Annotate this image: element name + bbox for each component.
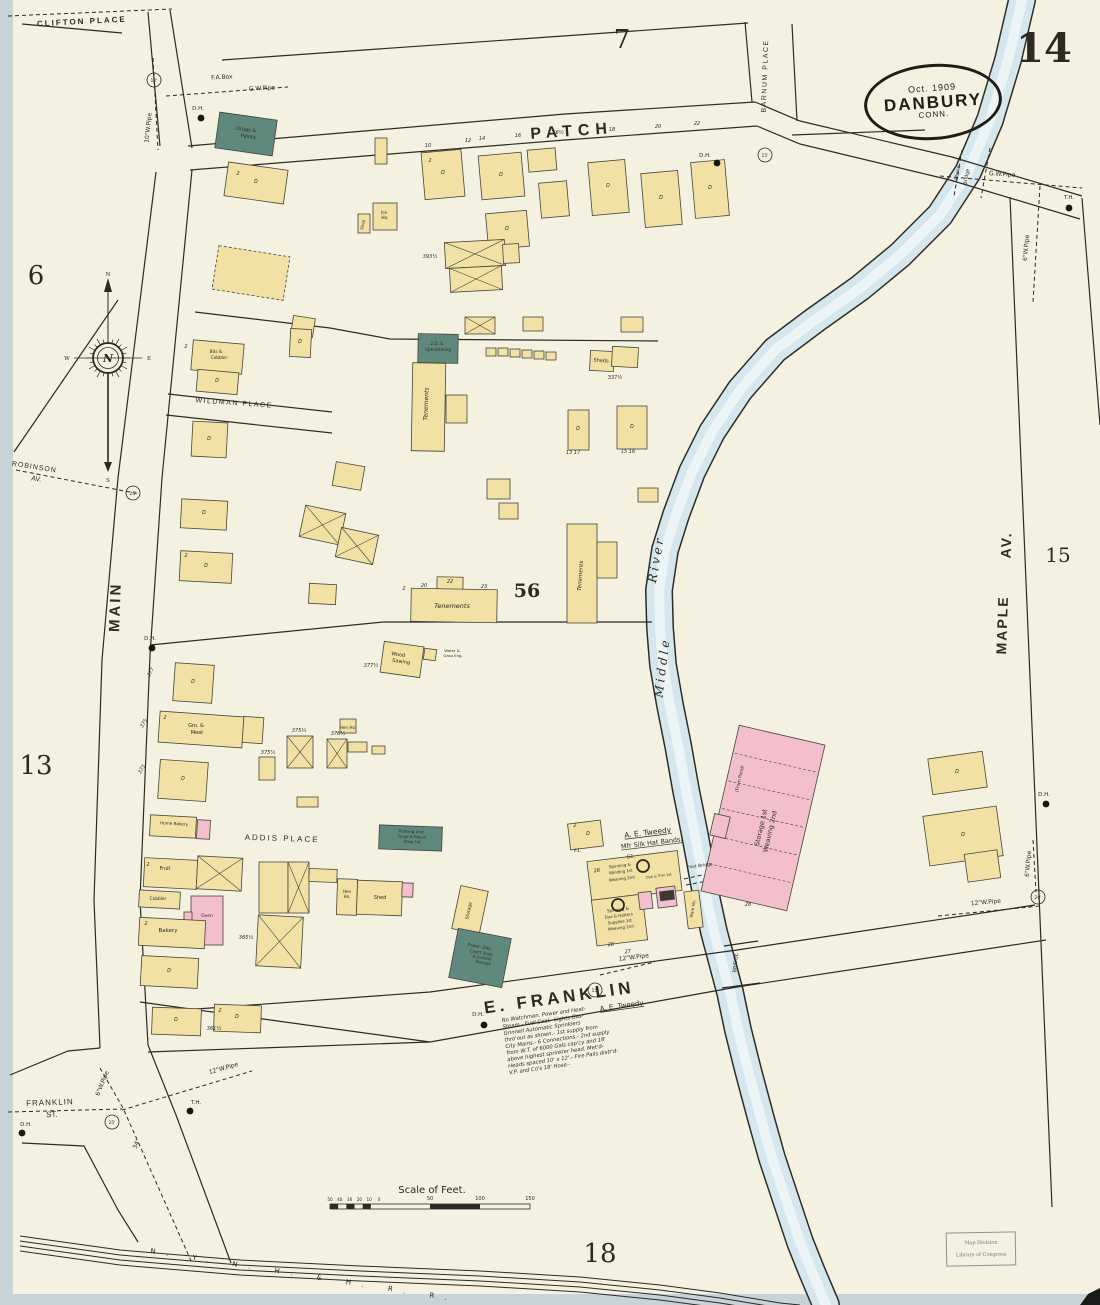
address-number-label: D bbox=[207, 436, 211, 442]
building bbox=[259, 757, 275, 780]
building-footprint bbox=[486, 348, 496, 356]
street-width-value: 20' bbox=[1035, 895, 1042, 901]
building-use-label: Shed bbox=[374, 895, 387, 901]
building-footprint bbox=[638, 488, 658, 502]
street-width-value: 12' bbox=[151, 78, 158, 84]
building bbox=[297, 797, 318, 807]
infrastructure-label: D.H. bbox=[192, 106, 204, 112]
building bbox=[287, 736, 313, 768]
scale-segment-filled bbox=[430, 1204, 480, 1209]
street-name-label: FRANKLIN bbox=[26, 1097, 74, 1108]
scale-tick-label: 30 bbox=[347, 1197, 353, 1202]
hydrant-icon bbox=[187, 1108, 194, 1115]
building-use-label: Cobbler bbox=[211, 355, 228, 361]
building-use-label: Tenements bbox=[422, 387, 430, 420]
building-footprint bbox=[259, 862, 288, 913]
infrastructure-label: F.A.Box bbox=[211, 73, 233, 81]
building bbox=[308, 583, 336, 604]
address-number-label: 2 bbox=[428, 158, 431, 164]
hydrant-icon bbox=[481, 1022, 488, 1029]
address-number-label: 2 bbox=[402, 586, 405, 592]
address-number-label: 22 bbox=[447, 579, 453, 585]
hydrant-icon bbox=[1066, 205, 1073, 212]
building bbox=[527, 148, 557, 172]
building bbox=[597, 542, 617, 578]
building-footprint bbox=[143, 858, 197, 890]
address-number-label: D bbox=[659, 195, 663, 201]
address-number-label: 28 bbox=[593, 868, 600, 875]
address-number-label: D bbox=[630, 424, 634, 430]
building bbox=[196, 856, 243, 891]
building bbox=[503, 244, 520, 264]
address-number-label: 2 bbox=[163, 715, 166, 721]
building bbox=[487, 479, 510, 499]
building-footprint bbox=[446, 395, 467, 423]
hydrant-icon bbox=[714, 160, 721, 167]
scale-tick-label: 100 bbox=[475, 1196, 485, 1202]
street-name-label: ST. bbox=[46, 1110, 58, 1119]
address-number-label: 2 bbox=[146, 862, 149, 868]
address-number-label: 2 bbox=[218, 1008, 221, 1014]
building-footprint bbox=[527, 148, 557, 172]
address-number-label: 18 bbox=[609, 127, 615, 133]
address-number-label: D bbox=[606, 183, 610, 189]
badge-state: CONN. bbox=[918, 110, 949, 121]
address-number-label: 2 bbox=[236, 171, 239, 177]
scale-tick-label: 10 bbox=[367, 1197, 373, 1202]
infrastructure-label: D.H. bbox=[699, 153, 711, 159]
building-use-label: Ho. bbox=[381, 215, 388, 221]
building bbox=[242, 716, 264, 743]
building bbox=[499, 503, 518, 519]
building-footprint bbox=[498, 348, 508, 356]
building-footprint bbox=[964, 850, 1001, 882]
building-use-label: 337½ bbox=[608, 374, 623, 381]
building-use-label: Gaso Eng. bbox=[443, 653, 462, 658]
scan-margin-left bbox=[0, 0, 13, 1305]
building bbox=[539, 181, 570, 218]
infrastructure-label: D.H. bbox=[144, 636, 156, 642]
building-use-label: Gro. & bbox=[188, 723, 204, 729]
building bbox=[259, 862, 288, 913]
building-footprint bbox=[503, 244, 520, 264]
building-use-label: Upholstering bbox=[425, 347, 451, 352]
address-number-label: 28 bbox=[745, 902, 751, 908]
building bbox=[660, 890, 675, 901]
scale-tick-label: 50 bbox=[327, 1197, 333, 1202]
address-number-label: 15 16 bbox=[621, 449, 635, 455]
building-footprint bbox=[638, 891, 653, 909]
building bbox=[332, 462, 365, 491]
infrastructure-label: T.H. bbox=[190, 1100, 201, 1106]
building-footprint bbox=[332, 462, 365, 491]
building-footprint bbox=[534, 351, 544, 359]
building-use-label: Cobbler bbox=[150, 896, 167, 902]
address-number-label: D bbox=[298, 339, 302, 345]
address-number-label: D bbox=[961, 832, 965, 838]
address-number-label: 375½ bbox=[261, 749, 276, 756]
address-number-label: F1. bbox=[574, 848, 582, 855]
building-footprint bbox=[402, 883, 413, 897]
address-number-label: 2 bbox=[184, 344, 187, 350]
address-number-label: 28 bbox=[607, 942, 614, 949]
sheet-number: 7 bbox=[614, 25, 631, 55]
building-use-label: Bakery bbox=[158, 928, 178, 934]
address-number-label: 14 bbox=[479, 136, 485, 142]
building bbox=[465, 317, 495, 334]
address-number-label: D bbox=[499, 172, 503, 178]
building-footprint bbox=[297, 797, 318, 807]
sanborn-map-page: 12'15'25'15'25'20'CLIFTON PLACEPATCHBARN… bbox=[0, 0, 1100, 1305]
scale-subcell bbox=[346, 1204, 354, 1209]
stamp-line2: Library of Congress bbox=[956, 1252, 1007, 1259]
building bbox=[197, 820, 211, 840]
building-use-label: 2.D. & bbox=[430, 341, 444, 346]
building-footprint bbox=[423, 648, 436, 661]
building-use-label: Hen Ho. bbox=[340, 725, 357, 730]
building-use-label: Shop 1st bbox=[403, 839, 421, 845]
address-number-label: 375¾ bbox=[292, 728, 307, 734]
building-use-label: Ho. bbox=[344, 894, 351, 899]
building bbox=[964, 850, 1001, 882]
building bbox=[621, 317, 643, 332]
building bbox=[402, 883, 413, 897]
address-number-label: 376½ bbox=[331, 730, 346, 737]
stamp-line1: Map Division bbox=[964, 1239, 997, 1246]
address-number-label: D bbox=[586, 831, 590, 837]
sheet-number: 18 bbox=[583, 1239, 616, 1269]
address-number-label: 2 bbox=[184, 553, 187, 559]
street-width-value: 25' bbox=[109, 1120, 116, 1126]
address-number-label: 377½ bbox=[364, 662, 379, 669]
building-footprint bbox=[259, 757, 275, 780]
address-number-label: 16½ bbox=[552, 129, 563, 136]
building-footprint bbox=[197, 820, 211, 840]
building-footprint bbox=[510, 349, 520, 357]
compass-direction-letter: E bbox=[147, 356, 151, 362]
scale-tick-label: 150 bbox=[525, 1196, 535, 1202]
compass-direction-letter: N bbox=[106, 272, 111, 278]
street-name-label: AV. bbox=[998, 531, 1015, 559]
building-use-label: Tenements bbox=[434, 602, 470, 610]
building-footprint bbox=[523, 317, 543, 331]
address-number-label: D bbox=[215, 378, 219, 384]
building bbox=[288, 862, 309, 913]
building bbox=[546, 352, 556, 360]
address-number-label: 2 bbox=[573, 823, 576, 829]
building-use-label: Bds & bbox=[210, 349, 223, 355]
building bbox=[309, 869, 337, 883]
building-use-label: Meat bbox=[191, 730, 203, 736]
address-number-label: D bbox=[441, 170, 445, 176]
building bbox=[638, 891, 653, 909]
street-name-label: MAIN bbox=[106, 581, 125, 632]
address-number-label: 13 17 bbox=[566, 450, 581, 456]
building bbox=[375, 138, 387, 164]
building bbox=[143, 858, 197, 890]
building-footprint bbox=[487, 479, 510, 499]
building bbox=[510, 349, 520, 357]
building bbox=[611, 346, 638, 367]
infrastructure-label: D.H. bbox=[20, 1122, 32, 1128]
building bbox=[423, 648, 436, 661]
building-footprint bbox=[621, 317, 643, 332]
address-number-label: 365½ bbox=[239, 934, 254, 941]
sheet-number: 13 bbox=[19, 751, 52, 781]
address-number-label: 12 bbox=[465, 138, 471, 144]
building-footprint bbox=[348, 742, 367, 752]
infrastructure-label: G.W.Pipe bbox=[249, 84, 276, 92]
street-width-value: 25' bbox=[130, 491, 137, 497]
building-footprint bbox=[242, 716, 264, 743]
building bbox=[149, 815, 196, 838]
address-number-label: 361½ bbox=[207, 1025, 222, 1032]
address-number-label: D bbox=[955, 769, 959, 775]
building-footprint bbox=[372, 746, 385, 754]
address-number-label: D bbox=[181, 776, 185, 782]
compass-direction-letter: S bbox=[106, 478, 110, 484]
building-footprint bbox=[149, 815, 196, 838]
scale-tick-label: 50 bbox=[427, 1196, 433, 1202]
library-stamp: Map Division Library of Congress bbox=[946, 1231, 1017, 1266]
address-number-label: 20 bbox=[421, 583, 427, 589]
address-number-label: D bbox=[191, 679, 195, 685]
sheet-number: 56 bbox=[514, 580, 540, 602]
scale-tick-label: 40 bbox=[337, 1197, 343, 1202]
address-number-label: D bbox=[505, 226, 509, 232]
address-number-label: D bbox=[174, 1017, 178, 1023]
building-footprint bbox=[660, 890, 675, 901]
address-number-label: 20 bbox=[655, 124, 661, 130]
building bbox=[522, 350, 532, 358]
building bbox=[256, 915, 304, 968]
sheet-number: 15 bbox=[1045, 543, 1070, 567]
scale-tick-label: 0 bbox=[378, 1197, 381, 1202]
building bbox=[348, 742, 367, 752]
building-footprint bbox=[375, 138, 387, 164]
hydrant-icon bbox=[149, 645, 156, 652]
address-number-label: D bbox=[204, 563, 208, 569]
building-footprint bbox=[309, 869, 337, 883]
building-footprint bbox=[539, 181, 570, 218]
infrastructure-label: D.H. bbox=[1038, 792, 1050, 798]
building bbox=[449, 266, 502, 293]
hydrant-icon bbox=[1043, 801, 1050, 808]
address-number-label: G1. bbox=[626, 854, 635, 861]
street-width-value: 15' bbox=[762, 153, 769, 159]
scale-subcell bbox=[363, 1204, 371, 1209]
address-number-label: 22 bbox=[694, 121, 700, 127]
scale-subcell bbox=[330, 1204, 338, 1209]
sanborn-map-canvas: 12'15'25'15'25'20'CLIFTON PLACEPATCHBARN… bbox=[0, 0, 1100, 1305]
compass-monogram: N bbox=[102, 352, 114, 365]
hydrant-icon bbox=[19, 1130, 26, 1137]
address-number-label: D bbox=[167, 968, 171, 974]
building bbox=[444, 239, 505, 268]
building bbox=[523, 317, 543, 331]
building bbox=[486, 348, 496, 356]
building bbox=[534, 351, 544, 359]
sheet-number: 14 bbox=[1016, 25, 1072, 72]
street-name-label: MAPLE bbox=[993, 595, 1011, 655]
address-number-label: D bbox=[708, 185, 712, 191]
address-number-label: 23 bbox=[481, 584, 487, 590]
building-footprint bbox=[308, 583, 336, 604]
building-footprint bbox=[546, 352, 556, 360]
infrastructure-label: T.H. bbox=[1063, 195, 1074, 201]
address-number-label: 393½ bbox=[423, 253, 438, 260]
building bbox=[446, 395, 467, 423]
compass-direction-letter: W bbox=[64, 356, 70, 362]
infrastructure-label: D.H. bbox=[472, 1012, 484, 1018]
address-number-label: D bbox=[202, 510, 206, 516]
building-footprint bbox=[522, 350, 532, 358]
building bbox=[327, 739, 347, 768]
building-use-label: Oven bbox=[201, 913, 213, 919]
sheet-number: 6 bbox=[28, 261, 45, 291]
address-number-label: 10 bbox=[425, 143, 431, 149]
address-number-label: 2 bbox=[144, 921, 147, 927]
building bbox=[372, 746, 385, 754]
building-use-label: Fruit bbox=[160, 866, 171, 872]
hydrant-icon bbox=[198, 115, 205, 122]
address-number-label: D bbox=[254, 179, 258, 185]
address-number-label: D bbox=[576, 426, 580, 432]
scan-margin-bottom bbox=[0, 1294, 1100, 1305]
building bbox=[638, 488, 658, 502]
address-number-label: 16 bbox=[515, 133, 521, 139]
building-footprint bbox=[499, 503, 518, 519]
building bbox=[498, 348, 508, 356]
scale-tick-label: 20 bbox=[357, 1197, 363, 1202]
scale-title: Scale of Feet. bbox=[398, 1185, 466, 1196]
address-number-label: D bbox=[235, 1014, 239, 1020]
building-footprint bbox=[597, 542, 617, 578]
building-footprint bbox=[611, 346, 638, 367]
